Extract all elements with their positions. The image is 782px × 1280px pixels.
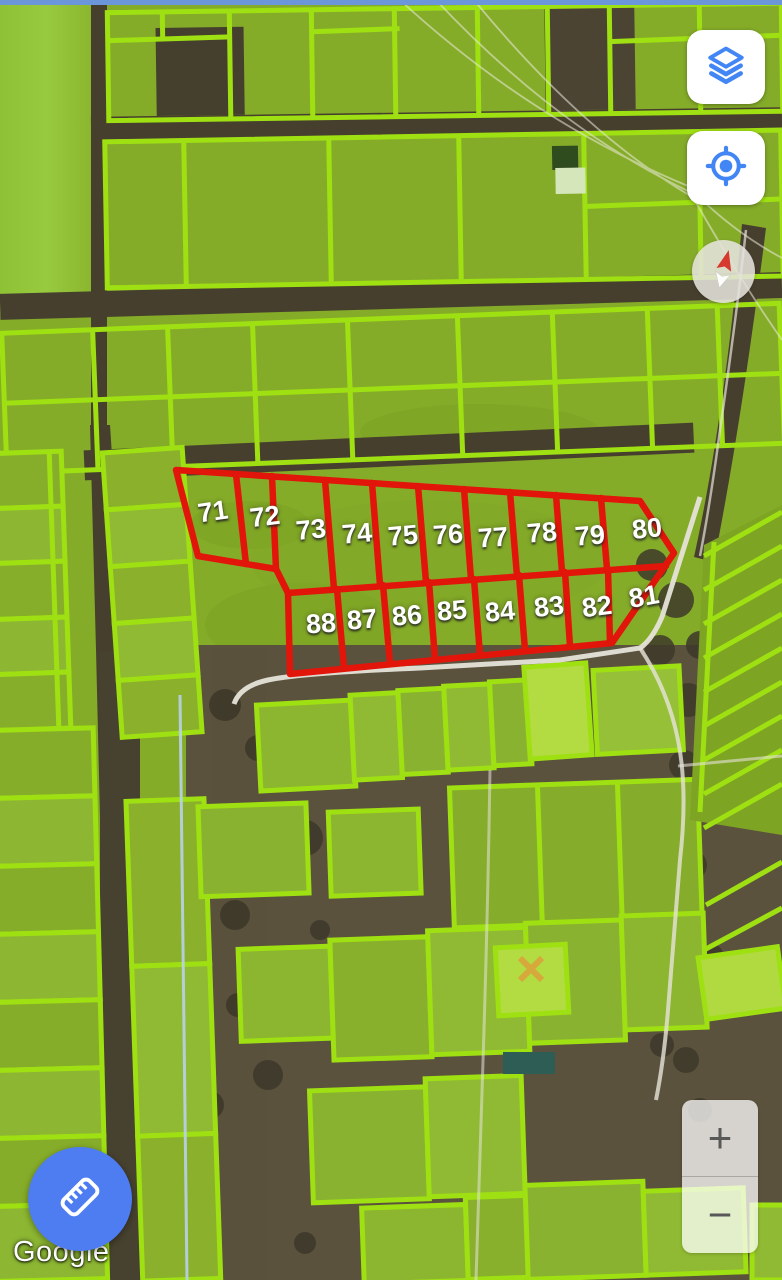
parcel-number-86[interactable]: 86 (391, 601, 423, 631)
parcel-number-75[interactable]: 75 (387, 521, 419, 551)
parcel-number-87[interactable]: 87 (346, 605, 378, 635)
measure-button[interactable] (28, 1147, 132, 1251)
parcel-number-80[interactable]: 80 (631, 514, 664, 544)
plain-field (0, 0, 92, 314)
parcel-number-74[interactable]: 74 (341, 519, 373, 549)
parcel-number-82[interactable]: 82 (580, 592, 613, 622)
parcel-number-77[interactable]: 77 (477, 523, 509, 552)
parcel-number-85[interactable]: 85 (436, 596, 468, 626)
parcel-number-76[interactable]: 76 (432, 520, 464, 549)
zoom-out-button[interactable]: − (682, 1176, 758, 1253)
locate-button[interactable] (687, 131, 765, 205)
zoom-in-button[interactable]: + (682, 1100, 758, 1176)
ruler-icon (51, 1168, 109, 1231)
locate-icon (705, 145, 747, 192)
parcel-number-88[interactable]: 88 (305, 609, 337, 638)
parcel-number-79[interactable]: 79 (574, 521, 606, 551)
top-blue-strip (0, 0, 782, 5)
compass-button[interactable] (692, 240, 755, 303)
parcel-number-83[interactable]: 83 (533, 592, 566, 622)
satellite-map (0, 0, 782, 1280)
parcel-number-71[interactable]: 71 (196, 497, 230, 528)
layers-button[interactable] (687, 30, 765, 104)
parcel-number-73[interactable]: 73 (295, 515, 328, 545)
layers-icon (705, 44, 747, 91)
compass-needle-icon (697, 242, 751, 301)
zoom-control: + − (682, 1100, 758, 1253)
map-canvas[interactable]: 717273747576777879808182838485868788 Goo… (0, 0, 782, 1280)
parcel-number-78[interactable]: 78 (526, 518, 558, 548)
parcel-number-81[interactable]: 81 (627, 581, 661, 613)
parcel-number-84[interactable]: 84 (484, 597, 516, 627)
parcel-number-72[interactable]: 72 (248, 502, 281, 532)
